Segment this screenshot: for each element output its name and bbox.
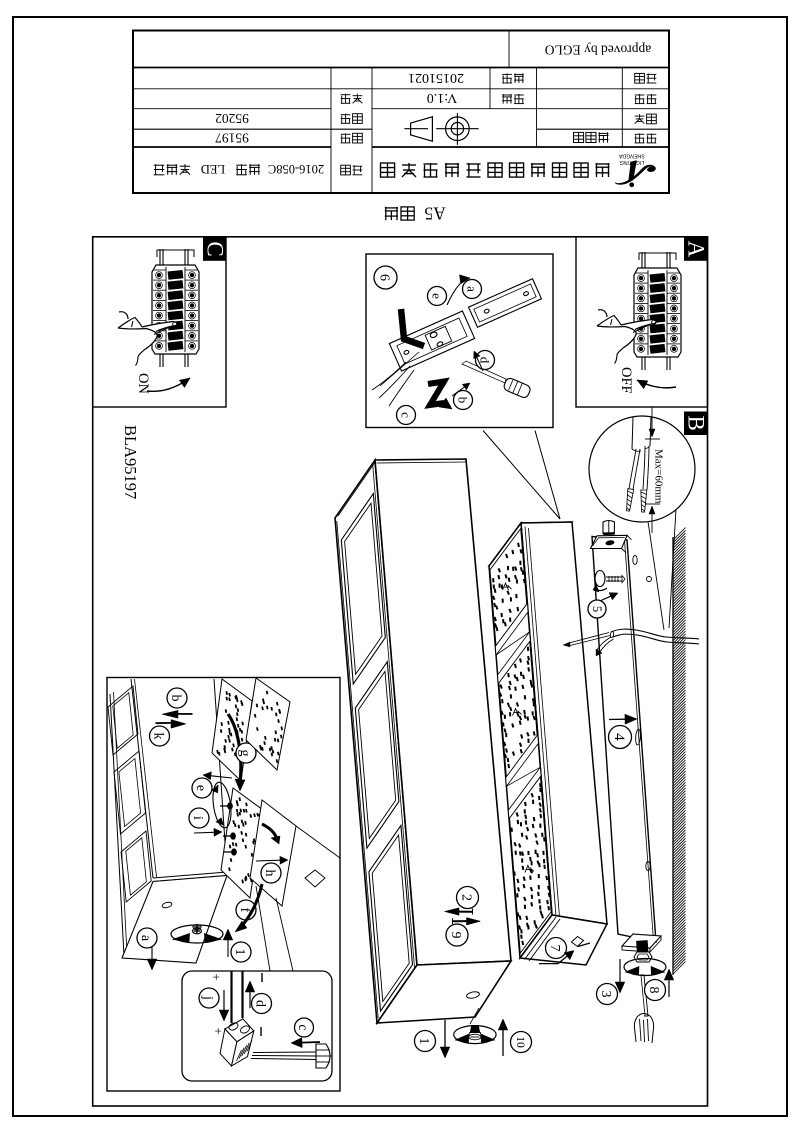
svg-text:OFF: OFF <box>618 367 634 394</box>
svg-text:h: h <box>262 870 277 877</box>
svg-text:C: C <box>203 241 228 256</box>
svg-text:SHENGDA: SHENGDA <box>619 153 645 159</box>
svg-text:e: e <box>193 785 208 791</box>
svg-text:c: c <box>399 412 414 418</box>
svg-text:LED: LED <box>201 162 225 176</box>
svg-text:d: d <box>253 1000 268 1007</box>
svg-text:A5: A5 <box>424 204 446 224</box>
svg-text:approved by EGLO: approved by EGLO <box>545 43 652 58</box>
svg-text:i: i <box>190 816 205 820</box>
svg-text:B: B <box>684 416 709 431</box>
svg-text:1: 1 <box>416 1038 431 1045</box>
svg-text:e: e <box>430 293 445 299</box>
svg-text:d: d <box>478 357 493 364</box>
svg-text:9: 9 <box>448 932 463 939</box>
svg-text:c: c <box>295 1024 310 1030</box>
svg-text:3: 3 <box>598 991 613 998</box>
svg-text:8: 8 <box>646 987 661 994</box>
svg-text:20151021: 20151021 <box>408 70 464 85</box>
svg-text:a: a <box>465 286 480 292</box>
svg-text:k: k <box>151 733 166 740</box>
svg-text:b: b <box>456 397 471 404</box>
svg-text:j: j <box>200 995 215 1000</box>
svg-text:6: 6 <box>377 274 392 281</box>
svg-text:1: 1 <box>232 949 247 956</box>
svg-text:2: 2 <box>459 894 474 901</box>
svg-text:g: g <box>237 750 252 757</box>
svg-text:b: b <box>168 695 183 702</box>
svg-text:95197: 95197 <box>215 131 249 146</box>
svg-text:95202: 95202 <box>215 111 249 126</box>
svg-text:+: + <box>209 973 224 980</box>
svg-text:A: A <box>684 241 709 258</box>
svg-text:LIGHTING: LIGHTING <box>620 159 645 165</box>
svg-text:V:1.0: V:1.0 <box>427 90 457 105</box>
svg-text:4: 4 <box>611 733 627 741</box>
svg-text:Max=60mm: Max=60mm <box>653 449 665 504</box>
svg-text:2016-058C: 2016-058C <box>268 162 324 176</box>
svg-text:7: 7 <box>547 945 562 952</box>
svg-text:10: 10 <box>514 1036 526 1048</box>
svg-text:5: 5 <box>590 606 604 612</box>
svg-text:a: a <box>138 935 153 942</box>
svg-text:BLA95197: BLA95197 <box>121 425 140 499</box>
